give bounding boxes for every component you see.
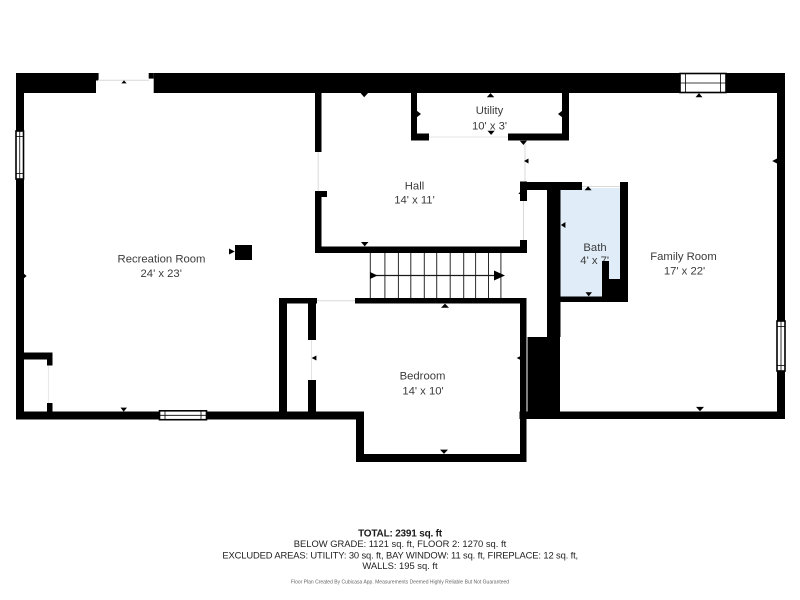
svg-text:Utility: Utility <box>476 105 504 117</box>
svg-text:Recreation Room: Recreation Room <box>118 253 206 265</box>
svg-text:Hall: Hall <box>405 180 424 192</box>
svg-text:Floor Plan Created By Cubicasa: Floor Plan Created By Cubicasa App. Meas… <box>291 579 509 585</box>
svg-text:EXCLUDED AREAS: UTILITY: 30 sq: EXCLUDED AREAS: UTILITY: 30 sq. ft, BAY … <box>222 550 578 561</box>
svg-text:Family Room: Family Room <box>650 251 717 263</box>
svg-text:17' x 22': 17' x 22' <box>664 266 705 278</box>
svg-text:Bedroom: Bedroom <box>400 370 446 382</box>
svg-text:10' x 3': 10' x 3' <box>472 121 507 133</box>
svg-text:WALLS: 195 sq. ft: WALLS: 195 sq. ft <box>362 560 438 571</box>
svg-text:BELOW GRADE: 1121 sq. ft, FLOO: BELOW GRADE: 1121 sq. ft, FLOOR 2: 1270 … <box>294 538 507 549</box>
svg-text:24' x 23': 24' x 23' <box>141 268 182 280</box>
svg-text:14' x 11': 14' x 11' <box>394 194 435 206</box>
svg-text:Bath: Bath <box>583 242 606 254</box>
svg-text:14' x 10': 14' x 10' <box>402 385 443 397</box>
